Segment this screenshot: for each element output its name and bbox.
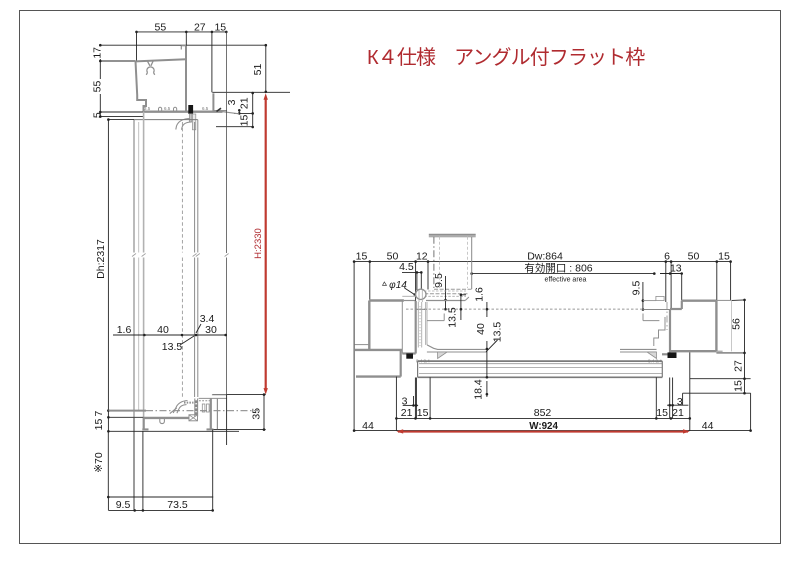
svg-text:21: 21 bbox=[401, 407, 413, 419]
svg-text:5: 5 bbox=[91, 112, 103, 118]
svg-text:6.5: 6.5 bbox=[202, 106, 209, 111]
svg-text:51: 51 bbox=[252, 64, 264, 76]
svg-text:27: 27 bbox=[733, 360, 745, 372]
svg-text:3.5: 3.5 bbox=[144, 106, 151, 111]
svg-text:17: 17 bbox=[92, 47, 104, 59]
svg-text:※70: ※70 bbox=[93, 452, 105, 473]
svg-text:7: 7 bbox=[93, 411, 105, 417]
svg-text:56: 56 bbox=[731, 318, 743, 330]
svg-text:3: 3 bbox=[677, 396, 683, 408]
svg-text:15: 15 bbox=[656, 407, 668, 419]
svg-text:Dw:864: Dw:864 bbox=[527, 250, 563, 262]
svg-text:12: 12 bbox=[416, 251, 428, 263]
svg-text:φ14: φ14 bbox=[389, 280, 407, 291]
svg-text:W:924: W:924 bbox=[529, 421, 558, 432]
svg-text:9.5: 9.5 bbox=[433, 273, 445, 288]
svg-text:40: 40 bbox=[157, 324, 169, 336]
svg-text:4.5: 4.5 bbox=[399, 261, 414, 273]
svg-text:9.5: 9.5 bbox=[116, 499, 131, 511]
svg-text:15: 15 bbox=[214, 21, 226, 33]
svg-text:852: 852 bbox=[534, 407, 552, 419]
svg-text:9.5: 9.5 bbox=[630, 281, 642, 296]
svg-text:21: 21 bbox=[238, 97, 250, 109]
svg-text:13.5: 13.5 bbox=[491, 322, 503, 343]
svg-text:К４仕様 アングル付フラット枠: К４仕様 アングル付フラット枠 bbox=[367, 46, 645, 69]
svg-text:6: 6 bbox=[664, 251, 670, 263]
svg-text:50: 50 bbox=[387, 251, 399, 263]
svg-text:15: 15 bbox=[356, 251, 368, 263]
svg-text:18.4: 18.4 bbox=[473, 379, 485, 400]
svg-text:1.6: 1.6 bbox=[117, 324, 132, 336]
svg-text:44: 44 bbox=[702, 420, 714, 432]
svg-text:55: 55 bbox=[155, 21, 167, 33]
svg-text:effective area: effective area bbox=[545, 277, 587, 284]
svg-text:30: 30 bbox=[205, 324, 217, 336]
svg-text:15: 15 bbox=[733, 380, 745, 392]
svg-text:13: 13 bbox=[670, 262, 682, 274]
svg-text:15: 15 bbox=[93, 419, 105, 431]
svg-text:H:2330: H:2330 bbox=[253, 228, 264, 259]
svg-text:44: 44 bbox=[362, 420, 374, 432]
svg-text:3: 3 bbox=[226, 99, 238, 105]
svg-text:15: 15 bbox=[718, 251, 730, 263]
svg-text:13.5: 13.5 bbox=[162, 341, 183, 353]
svg-text:35: 35 bbox=[250, 408, 262, 420]
svg-text:73.5: 73.5 bbox=[167, 499, 188, 511]
svg-text:6.5: 6.5 bbox=[164, 106, 171, 111]
svg-text:有効開口 : 806: 有効開口 : 806 bbox=[524, 262, 592, 275]
svg-text:21: 21 bbox=[672, 407, 684, 419]
svg-text:40: 40 bbox=[475, 323, 487, 335]
svg-text:50: 50 bbox=[688, 251, 700, 263]
svg-text:13.5: 13.5 bbox=[446, 307, 458, 328]
svg-text:8.4 8.4: 8.4 8.4 bbox=[648, 359, 662, 364]
svg-text:Dh:2317: Dh:2317 bbox=[95, 239, 107, 279]
svg-text:1.6: 1.6 bbox=[474, 287, 486, 302]
svg-text:55: 55 bbox=[92, 81, 104, 93]
svg-text:15: 15 bbox=[238, 115, 250, 127]
svg-text:3.4: 3.4 bbox=[200, 313, 215, 325]
svg-text:15: 15 bbox=[417, 407, 429, 419]
svg-text:27: 27 bbox=[194, 21, 206, 33]
